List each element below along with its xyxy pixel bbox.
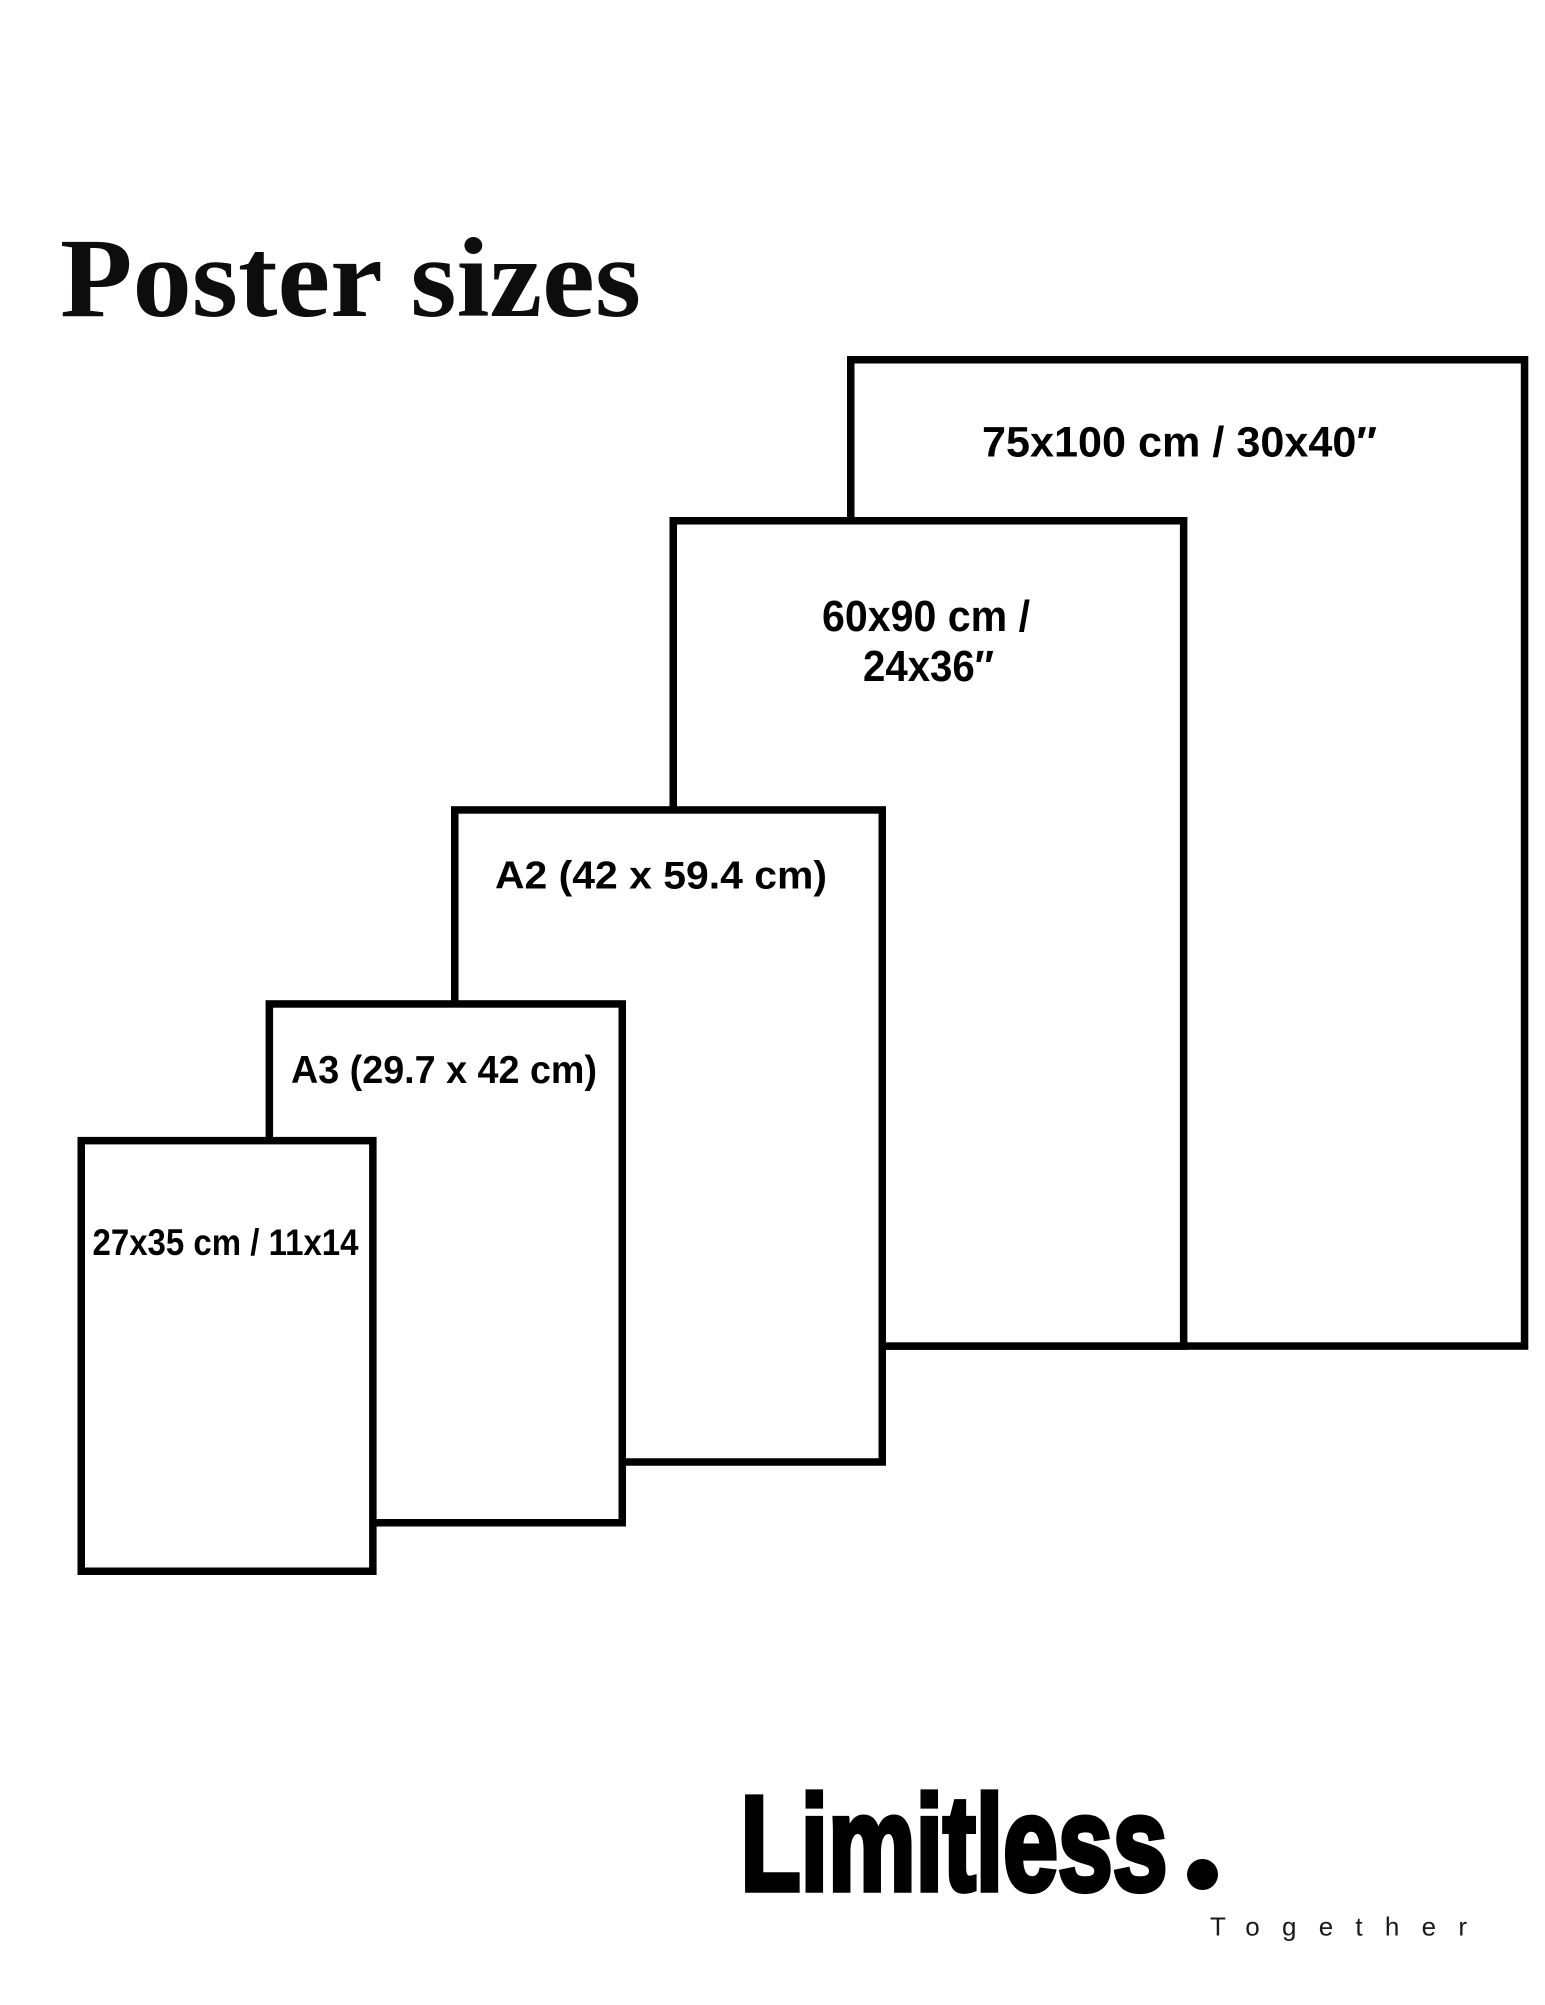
svg-text:27x35 cm / 11x14: 27x35 cm / 11x14 bbox=[93, 1222, 359, 1263]
svg-text:A3 (29.7 x 42 cm): A3 (29.7 x 42 cm) bbox=[291, 1049, 597, 1092]
svg-text:A2 (42 x 59.4 cm): A2 (42 x 59.4 cm) bbox=[495, 855, 827, 898]
svg-text:60x90 cm /: 60x90 cm / bbox=[822, 593, 1030, 641]
svg-text:Limitless: Limitless bbox=[741, 1768, 1168, 1919]
svg-text:24x36″: 24x36″ bbox=[863, 643, 994, 691]
svg-text:Poster sizes: Poster sizes bbox=[60, 216, 641, 341]
svg-text:75x100 cm / 30x40″: 75x100 cm / 30x40″ bbox=[982, 419, 1377, 467]
